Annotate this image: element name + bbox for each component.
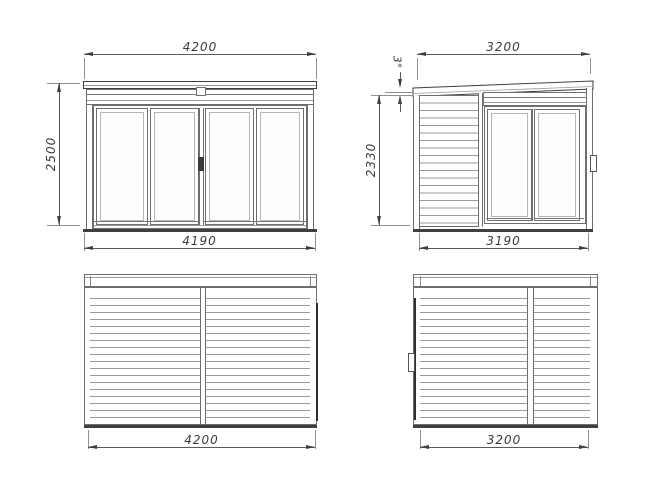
front-right-corner-trim — [307, 105, 314, 229]
rear-roof-band-tick-right — [310, 276, 311, 286]
front-door-glass-1 — [100, 112, 144, 221]
side-right-dim-bottom-line — [419, 248, 588, 249]
front-dim-top-label: 4200 — [84, 41, 316, 54]
side-right-dim-bottom-label: 3190 — [419, 235, 588, 248]
side-right-angle-ext-line — [385, 92, 413, 93]
front-door-bottom-track-2 — [94, 225, 306, 226]
side-left-slat-cladding — [420, 292, 590, 423]
front-dim-top-ext-left — [84, 58, 85, 79]
side-right-dim-left-ext-bottom — [371, 225, 410, 226]
rear-base — [84, 425, 317, 428]
side-left-dim-line — [420, 447, 588, 448]
front-dim-left-arrow-bottom — [57, 216, 61, 225]
rear-roof-band — [84, 274, 317, 287]
side-right-dim-left-arrow-top — [377, 95, 381, 104]
technical-drawing-sheet: 4200 2500 4190 — [0, 0, 667, 500]
side-left-base — [413, 425, 598, 428]
side-right-angle-arrow-up — [398, 95, 402, 104]
side-right-door-header — [483, 92, 587, 106]
front-dim-left-label: 2500 — [44, 137, 58, 172]
front-left-corner-trim — [86, 105, 93, 229]
front-dim-left-arrow-top — [57, 83, 61, 92]
side-right-header-line-2 — [484, 102, 586, 103]
side-right-dim-top-label: 3200 — [417, 41, 590, 54]
side-left-roof-band-line — [414, 277, 597, 278]
side-left-roof-band-tick-left — [420, 276, 421, 286]
front-dim-bottom-line — [84, 248, 315, 249]
side-left-dim-label: 3200 — [420, 434, 588, 447]
side-left-post — [527, 288, 534, 424]
side-right-wall-door-divider — [478, 93, 483, 227]
side-right-dim-top-ext-right — [590, 58, 591, 74]
rear-center-post — [200, 288, 206, 424]
front-door-panel-4 — [256, 108, 304, 225]
rear-dim-label: 4200 — [88, 434, 315, 447]
rear-dim-line — [88, 447, 315, 448]
front-base — [83, 229, 317, 232]
front-door-handle — [198, 157, 204, 171]
front-fascia-line-2 — [87, 100, 313, 101]
front-dim-left-line — [59, 83, 60, 225]
front-door-glass-4 — [260, 112, 300, 221]
front-dim-top-ext-right — [316, 58, 317, 79]
side-right-dim-bottom-ext-right — [588, 233, 589, 251]
front-fascia-junction-box — [196, 87, 206, 96]
front-door-panel-1 — [96, 108, 148, 225]
side-right-door-glass-1 — [491, 113, 528, 217]
rear-roof-band-line — [85, 277, 316, 278]
rear-dim-ext-right — [315, 430, 316, 449]
side-right-dim-top-ext-left — [417, 58, 418, 80]
side-right-dim-left-line — [379, 95, 380, 225]
front-dim-bottom-ext-right — [315, 233, 316, 251]
side-right-dim-left-arrow-bottom — [377, 216, 381, 225]
front-door-panel-2 — [150, 108, 199, 225]
side-right-roof-angle-label: 3° — [391, 56, 404, 69]
side-right-door-handle — [590, 155, 597, 172]
side-right-base — [413, 229, 593, 232]
side-left-roof-band — [413, 274, 598, 287]
front-roof-edge-line — [84, 85, 316, 86]
side-left-roof-band-tick-right — [590, 276, 591, 286]
side-right-dim-left-label: 2330 — [364, 143, 378, 178]
side-left-door-handle — [408, 353, 415, 372]
front-door-glass-3 — [209, 112, 250, 221]
rear-right-door-edge — [316, 303, 318, 421]
side-right-slat-wall — [419, 95, 479, 227]
front-dim-bottom-label: 4190 — [84, 235, 315, 248]
side-right-door-mullion — [532, 109, 535, 221]
rear-roof-band-tick-left — [90, 276, 91, 286]
side-right-door-track — [486, 218, 584, 219]
front-dim-left-ext-top — [47, 83, 80, 84]
front-door-glass-2 — [154, 112, 195, 221]
side-left-dim-ext-right — [588, 430, 589, 449]
front-door-panel-3 — [205, 108, 254, 225]
front-dim-left-ext-bottom — [47, 225, 80, 226]
front-dim-top-line — [84, 54, 316, 55]
side-right-door-panel-2 — [534, 109, 580, 221]
side-right-door-glass-2 — [538, 113, 576, 217]
side-right-angle-arrow-down — [398, 79, 402, 88]
side-right-door-panel-1 — [487, 109, 532, 221]
side-right-header-line — [484, 97, 586, 98]
side-right-dim-top-line — [417, 54, 590, 55]
